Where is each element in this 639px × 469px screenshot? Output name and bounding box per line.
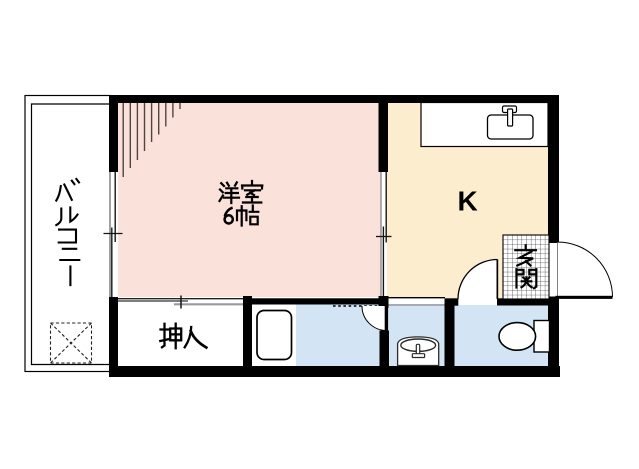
svg-text:K: K (458, 185, 478, 216)
